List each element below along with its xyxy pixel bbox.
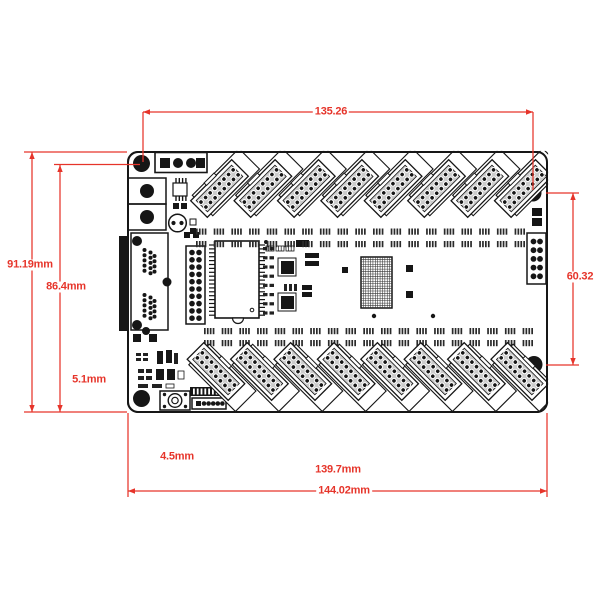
- pcb-artwork: [0, 0, 600, 600]
- dim-label-offset-bottom-left: 5.1mm: [70, 375, 108, 386]
- dim-label-width-full: 144.02mm: [316, 486, 372, 497]
- card-edge-bar: [119, 236, 129, 331]
- dim-label-height-full: 91.19mm: [5, 260, 55, 271]
- dim-label-height-right: 60.32: [565, 272, 596, 283]
- pcb-dimension-drawing: 135.26 91.19mm 86.4mm 60.32 5.1mm 4.5mm …: [0, 0, 600, 600]
- dim-label-width-inner: 139.7mm: [313, 465, 363, 476]
- dim-label-height-inner: 86.4mm: [44, 282, 88, 293]
- dim-label-offset-bottom: 4.5mm: [158, 452, 196, 463]
- dim-label-width-top: 135.26: [313, 107, 349, 118]
